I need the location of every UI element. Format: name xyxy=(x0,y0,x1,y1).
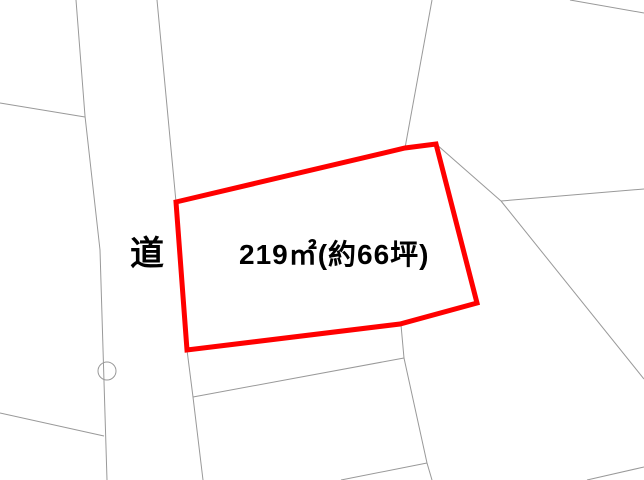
parcel-boundary-line xyxy=(193,358,404,397)
parcel-boundary-line xyxy=(570,0,644,13)
parcel-boundary-line xyxy=(0,103,85,117)
parcel-boundary-line xyxy=(405,0,432,148)
parcel-boundary-line xyxy=(501,201,644,379)
parcel-boundary-line xyxy=(76,0,107,480)
parcel-boundary-line xyxy=(157,0,176,202)
parcel-boundary-line xyxy=(401,325,432,480)
land-plot-map: 道 219㎡(約66坪) xyxy=(0,0,644,480)
parcel-boundary-line xyxy=(341,463,427,480)
parcel-boundary-line xyxy=(501,189,644,201)
parcel-area-label: 219㎡(約66坪) xyxy=(239,241,430,269)
survey-marker-icon xyxy=(98,362,116,380)
road-label: 道 xyxy=(130,237,164,271)
parcel-boundary-line xyxy=(187,350,203,480)
parcel-boundary-line xyxy=(0,413,104,436)
parcel-boundary-line xyxy=(587,467,644,480)
